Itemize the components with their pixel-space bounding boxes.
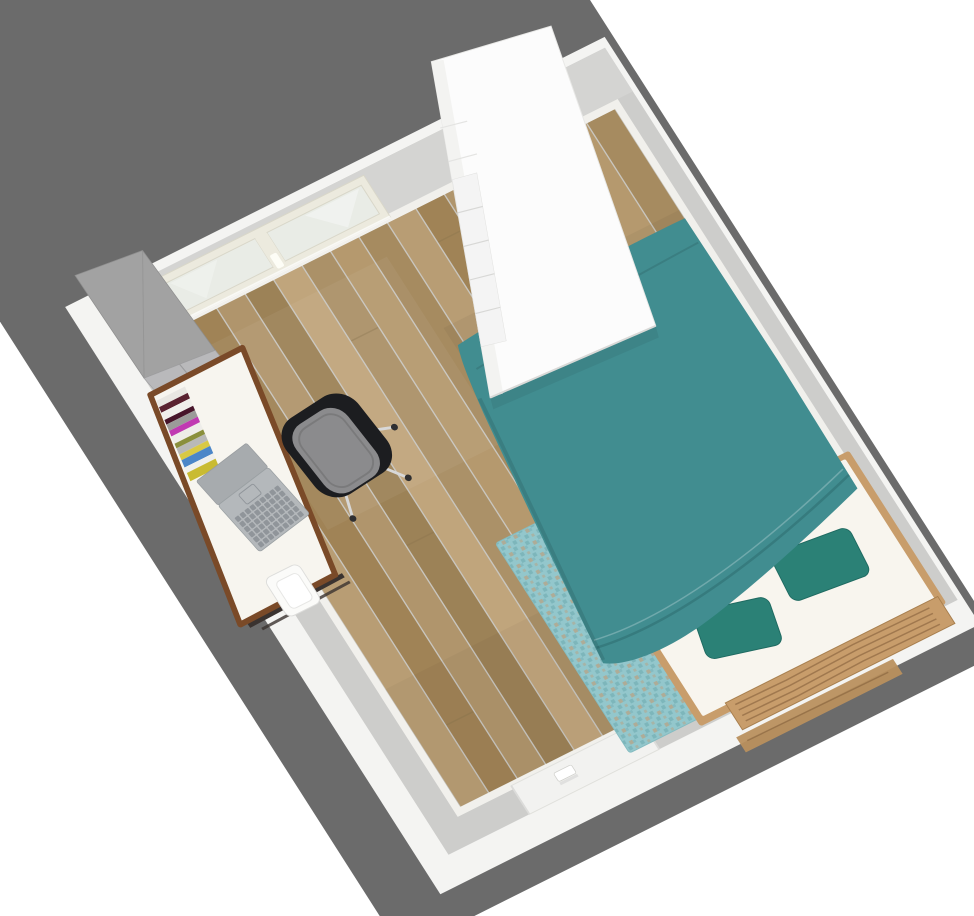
room-planner-viewport [0,0,974,916]
